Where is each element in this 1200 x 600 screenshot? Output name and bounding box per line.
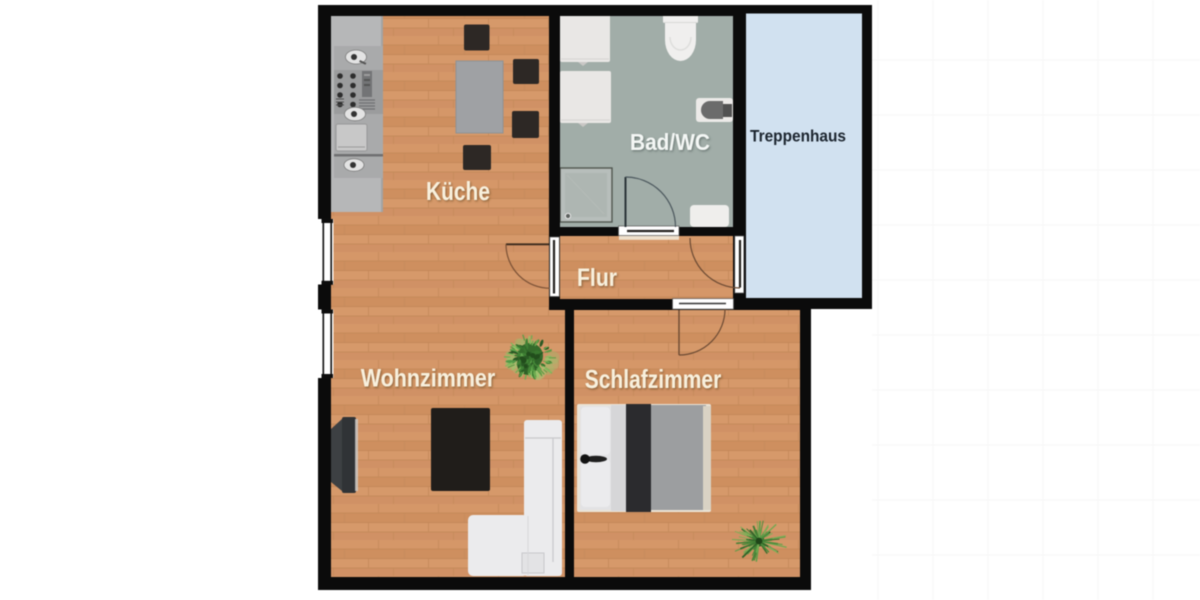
svg-text:Schlafzimmer: Schlafzimmer xyxy=(585,364,722,394)
svg-text:Wohnzimmer: Wohnzimmer xyxy=(361,365,496,393)
svg-text:Bad/WC: Bad/WC xyxy=(630,129,710,155)
svg-text:Treppenhaus: Treppenhaus xyxy=(750,128,846,146)
svg-text:Flur: Flur xyxy=(577,264,617,292)
svg-text:Küche: Küche xyxy=(426,176,490,206)
